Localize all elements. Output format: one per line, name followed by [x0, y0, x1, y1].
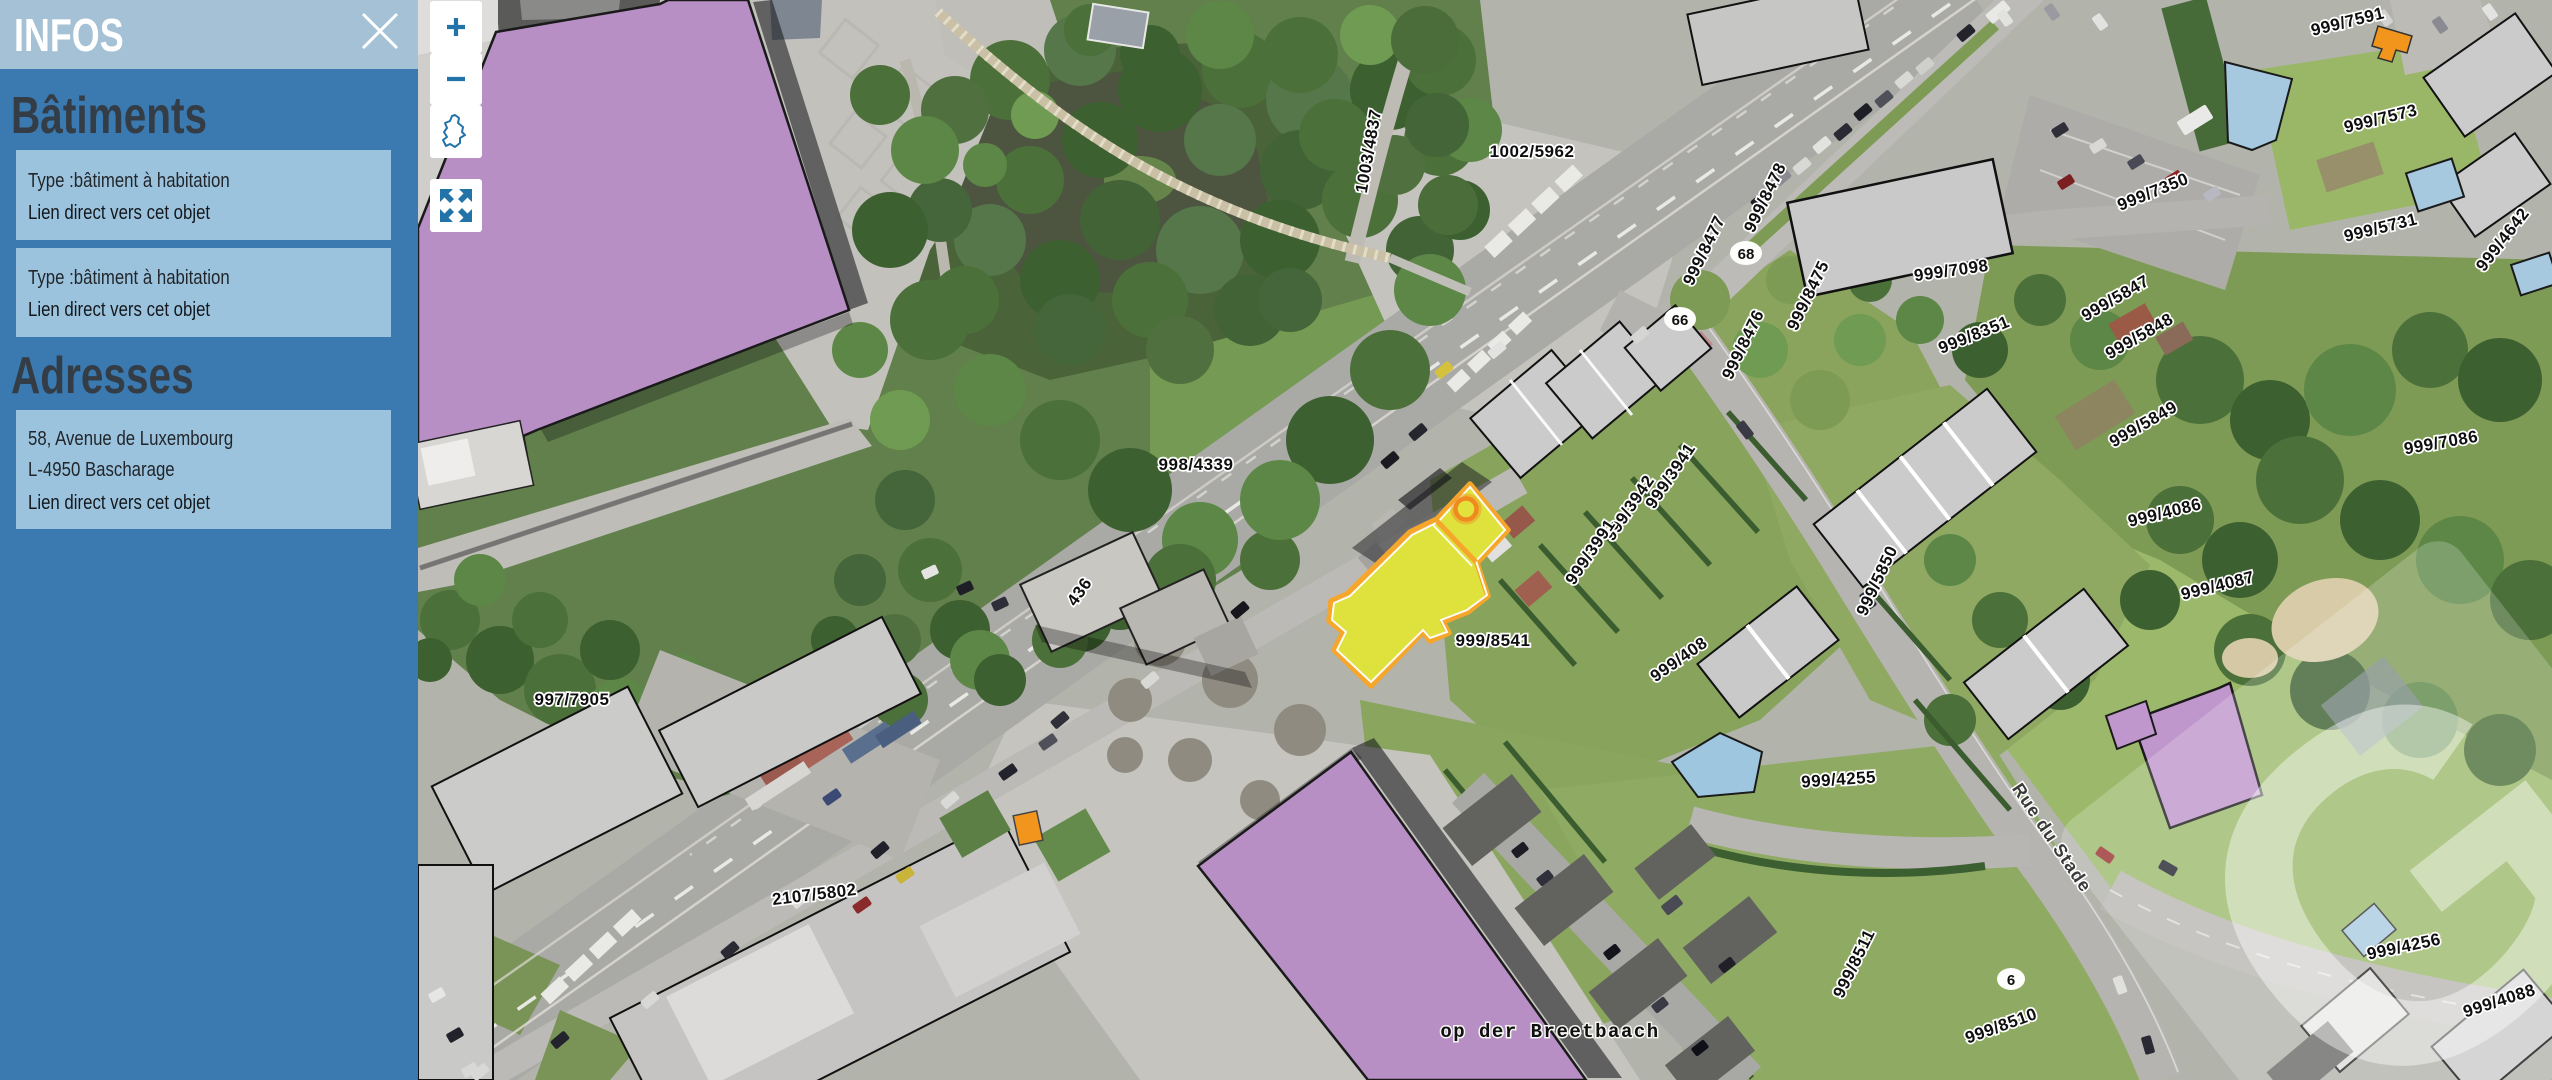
- svg-text:66: 66: [1672, 312, 1689, 329]
- svg-text:997/7905: 997/7905: [535, 690, 610, 709]
- svg-text:998/4339: 998/4339: [1159, 455, 1234, 474]
- svg-text:999/8541: 999/8541: [1456, 631, 1531, 650]
- svg-text:op der Breetbaach: op der Breetbaach: [1440, 1021, 1659, 1043]
- svg-text:1002/5962: 1002/5962: [1490, 142, 1575, 161]
- svg-text:6: 6: [2007, 972, 2015, 989]
- svg-text:68: 68: [1738, 246, 1755, 263]
